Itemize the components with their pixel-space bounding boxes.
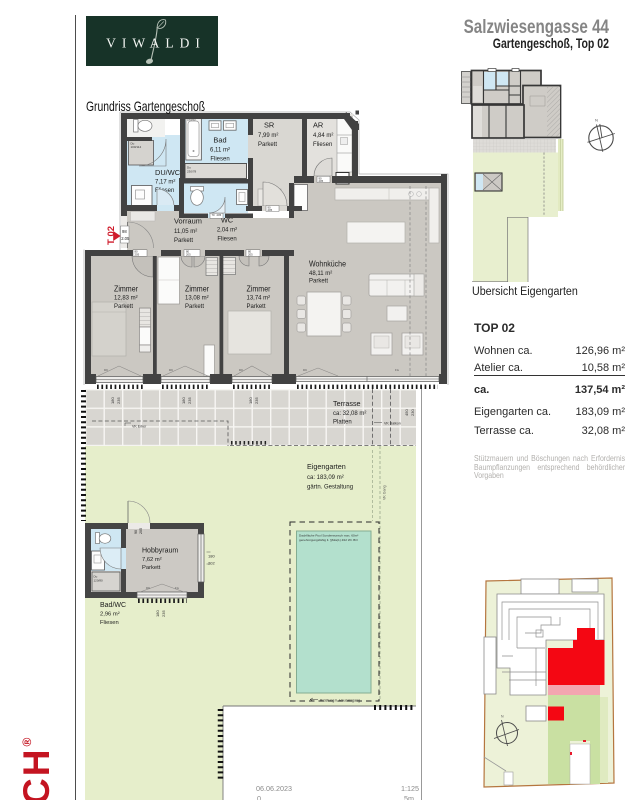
svg-text:AR: AR <box>313 121 323 130</box>
svg-text:235: 235 <box>161 610 166 617</box>
svg-text:205: 205 <box>139 528 143 534</box>
svg-text:2,96 m²: 2,96 m² <box>100 612 120 618</box>
svg-text:ca: 183,09 m²: ca: 183,09 m² <box>307 475 344 481</box>
svg-text:DK: DK <box>239 368 243 372</box>
svg-text:DU/WC: DU/WC <box>155 168 181 177</box>
svg-text:DK: DK <box>146 586 150 590</box>
svg-text:7,17 m²: 7,17 m² <box>155 180 175 186</box>
svg-text:Bad: Bad <box>213 136 226 145</box>
svg-text:Brüstung li. Hauseingang: Brüstung li. Hauseingang <box>320 699 360 703</box>
svg-text:Fix: Fix <box>395 368 399 372</box>
svg-text:180: 180 <box>155 610 160 617</box>
svg-text:VK Balkon: VK Balkon <box>384 422 401 426</box>
svg-text:DK: DK <box>104 368 108 372</box>
svg-text:7,99 m²: 7,99 m² <box>258 133 278 139</box>
svg-text:180: 180 <box>181 397 186 404</box>
svg-text:11,05 m²: 11,05 m² <box>174 229 197 235</box>
svg-text:205: 205 <box>248 253 253 257</box>
svg-text:Parkett: Parkett <box>185 304 204 310</box>
svg-text:Zimmer: Zimmer <box>185 284 209 294</box>
svg-text:N: N <box>595 118 598 123</box>
svg-text:13,74 m²: 13,74 m² <box>247 296 271 302</box>
svg-text:235: 235 <box>254 397 259 404</box>
svg-text:Eigengarten: Eigengarten <box>307 462 346 471</box>
svg-text:202: 202 <box>208 561 215 566</box>
svg-text:98: 98 <box>122 229 127 234</box>
svg-text:6,11 m²: 6,11 m² <box>210 148 230 154</box>
svg-text:235: 235 <box>187 397 192 404</box>
svg-text:180: 180 <box>208 554 215 559</box>
svg-text:4,84 m²: 4,84 m² <box>313 133 333 139</box>
svg-text:Parkett: Parkett <box>114 304 133 310</box>
svg-text:180: 180 <box>248 397 253 404</box>
svg-text:Fliesen: Fliesen <box>217 237 236 243</box>
svg-text:Fliesen: Fliesen <box>100 620 119 626</box>
svg-text:180: 180 <box>110 397 115 404</box>
svg-text:Zimmer: Zimmer <box>247 284 271 294</box>
svg-text:ca: 32,08 m²: ca: 32,08 m² <box>333 411 366 417</box>
svg-text:Wohnküche: Wohnküche <box>309 260 346 269</box>
svg-text:13,08 m²: 13,08 m² <box>185 296 209 302</box>
svg-text:DK: DK <box>303 368 307 372</box>
svg-text:VK Erker: VK Erker <box>132 425 147 429</box>
svg-text:100/114: 100/114 <box>131 145 142 149</box>
svg-text:CH®: CH® <box>16 736 57 800</box>
svg-text:Fliesen: Fliesen <box>313 142 332 148</box>
svg-text:90: 90 <box>134 530 138 534</box>
svg-text:Parkett: Parkett <box>174 238 193 244</box>
svg-text:Zimmer: Zimmer <box>114 284 138 294</box>
svg-text:450: 450 <box>404 409 409 416</box>
svg-text:48,11 m²: 48,11 m² <box>309 271 332 277</box>
svg-text:205: 205 <box>268 208 273 212</box>
svg-text:Fliesen: Fliesen <box>210 157 229 163</box>
svg-text:SR: SR <box>264 121 274 130</box>
svg-text:Parkett: Parkett <box>142 565 161 571</box>
svg-text:Parkett: Parkett <box>247 304 266 310</box>
svg-text:120/80: 120/80 <box>94 578 104 582</box>
svg-text:Terrasse: Terrasse <box>333 399 361 408</box>
svg-text:genehmigungsfähig lt. §62a(1): genehmigungsfähig lt. §62a(1) Z22 Wr. BO <box>299 538 358 542</box>
svg-text:Bad/WC: Bad/WC <box>100 602 126 609</box>
svg-text:230: 230 <box>410 409 415 416</box>
svg-text:Parkett: Parkett <box>309 278 328 284</box>
svg-text:205: 205 <box>319 179 324 183</box>
svg-text:230/78: 230/78 <box>187 169 197 173</box>
svg-text:7,62 m²: 7,62 m² <box>142 557 162 563</box>
svg-text:Platten: Platten <box>333 420 352 426</box>
svg-text:70: 70 <box>212 213 216 217</box>
svg-text:VIWALDI: VIWALDI <box>106 36 206 51</box>
svg-text:2.05: 2.05 <box>121 236 130 241</box>
svg-text:gärtn. Gestaltung: gärtn. Gestaltung <box>307 485 353 491</box>
svg-text:VK Gang: VK Gang <box>383 485 387 500</box>
svg-text:205: 205 <box>186 253 191 257</box>
svg-text:205: 205 <box>217 213 222 217</box>
svg-text:DK: DK <box>169 368 173 372</box>
svg-text:Hobbyraum: Hobbyraum <box>142 548 178 555</box>
svg-text:2,04 m²: 2,04 m² <box>217 228 237 234</box>
svg-text:Fix: Fix <box>175 586 179 590</box>
svg-text:12,83 m²: 12,83 m² <box>114 296 138 302</box>
svg-text:Parkett: Parkett <box>258 142 277 148</box>
svg-text:235: 235 <box>116 397 121 404</box>
svg-text:205: 205 <box>135 253 140 257</box>
